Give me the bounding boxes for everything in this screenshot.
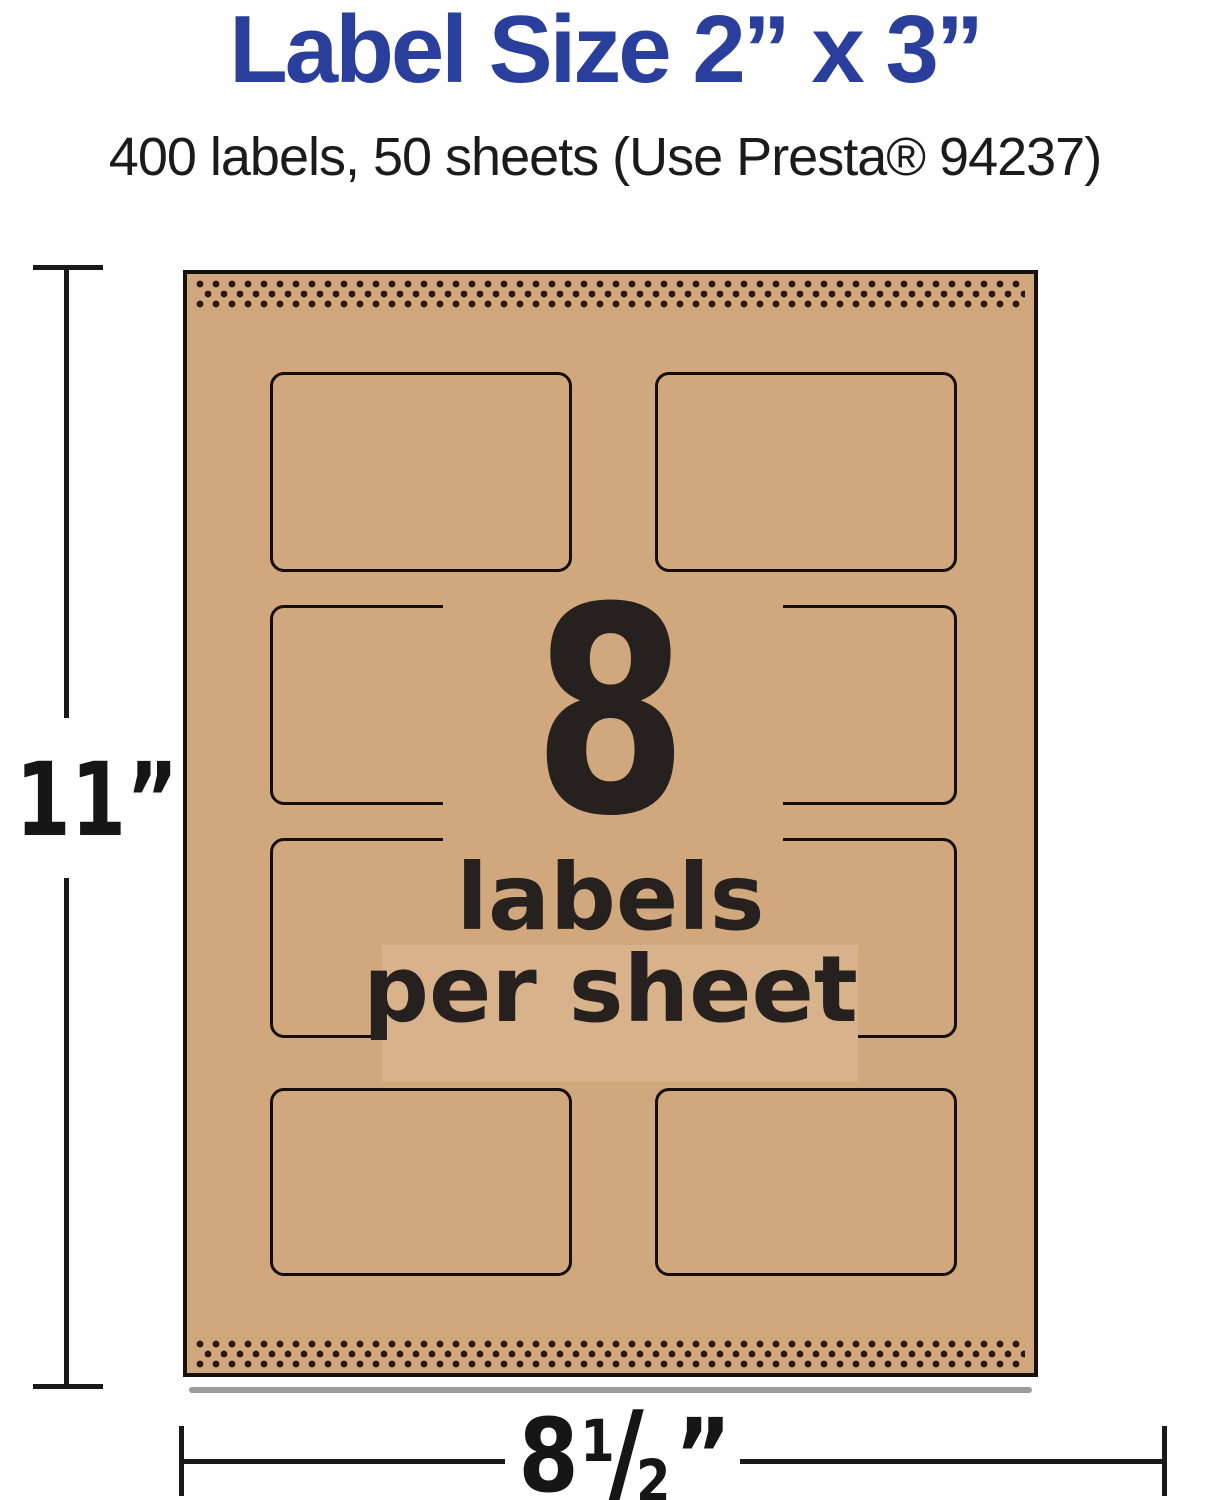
- width-dimension-line-right: [740, 1459, 1166, 1464]
- width-inch-quote: ”: [675, 1406, 732, 1500]
- labels-word: labels: [187, 852, 1034, 944]
- label-outline: [655, 372, 957, 572]
- label-outline: [270, 372, 572, 572]
- width-fraction-denominator: 2: [636, 1452, 670, 1500]
- width-dimension-line-left: [182, 1459, 505, 1464]
- width-dimension-right-cap: [1162, 1426, 1167, 1496]
- page-subtitle: 400 labels, 50 sheets (Use Presta® 94237…: [0, 124, 1210, 192]
- label-outline: [270, 1088, 572, 1276]
- labels-count: 8: [280, 571, 941, 856]
- height-dimension-line-lower: [64, 878, 69, 1385]
- top-perforation-dots: [196, 279, 1025, 310]
- label-outline: [655, 1088, 957, 1276]
- bottom-perforation-dots: [196, 1339, 1025, 1370]
- label-sheet: 8 labels per sheet: [183, 270, 1038, 1377]
- width-whole-number: 8: [518, 1406, 578, 1500]
- height-dimension-line-upper: [64, 270, 69, 718]
- per-sheet-word: per sheet: [187, 944, 1034, 1036]
- height-dimension-bottom-cap: [33, 1384, 103, 1389]
- height-dimension-label: 11”: [15, 750, 124, 852]
- page-title: Label Size 2” x 3”: [0, 0, 1210, 100]
- product-diagram-canvas: Label Size 2” x 3” 400 labels, 50 sheets…: [0, 0, 1210, 1500]
- width-dimension-label: 8 1 / 2 ”: [523, 1406, 727, 1500]
